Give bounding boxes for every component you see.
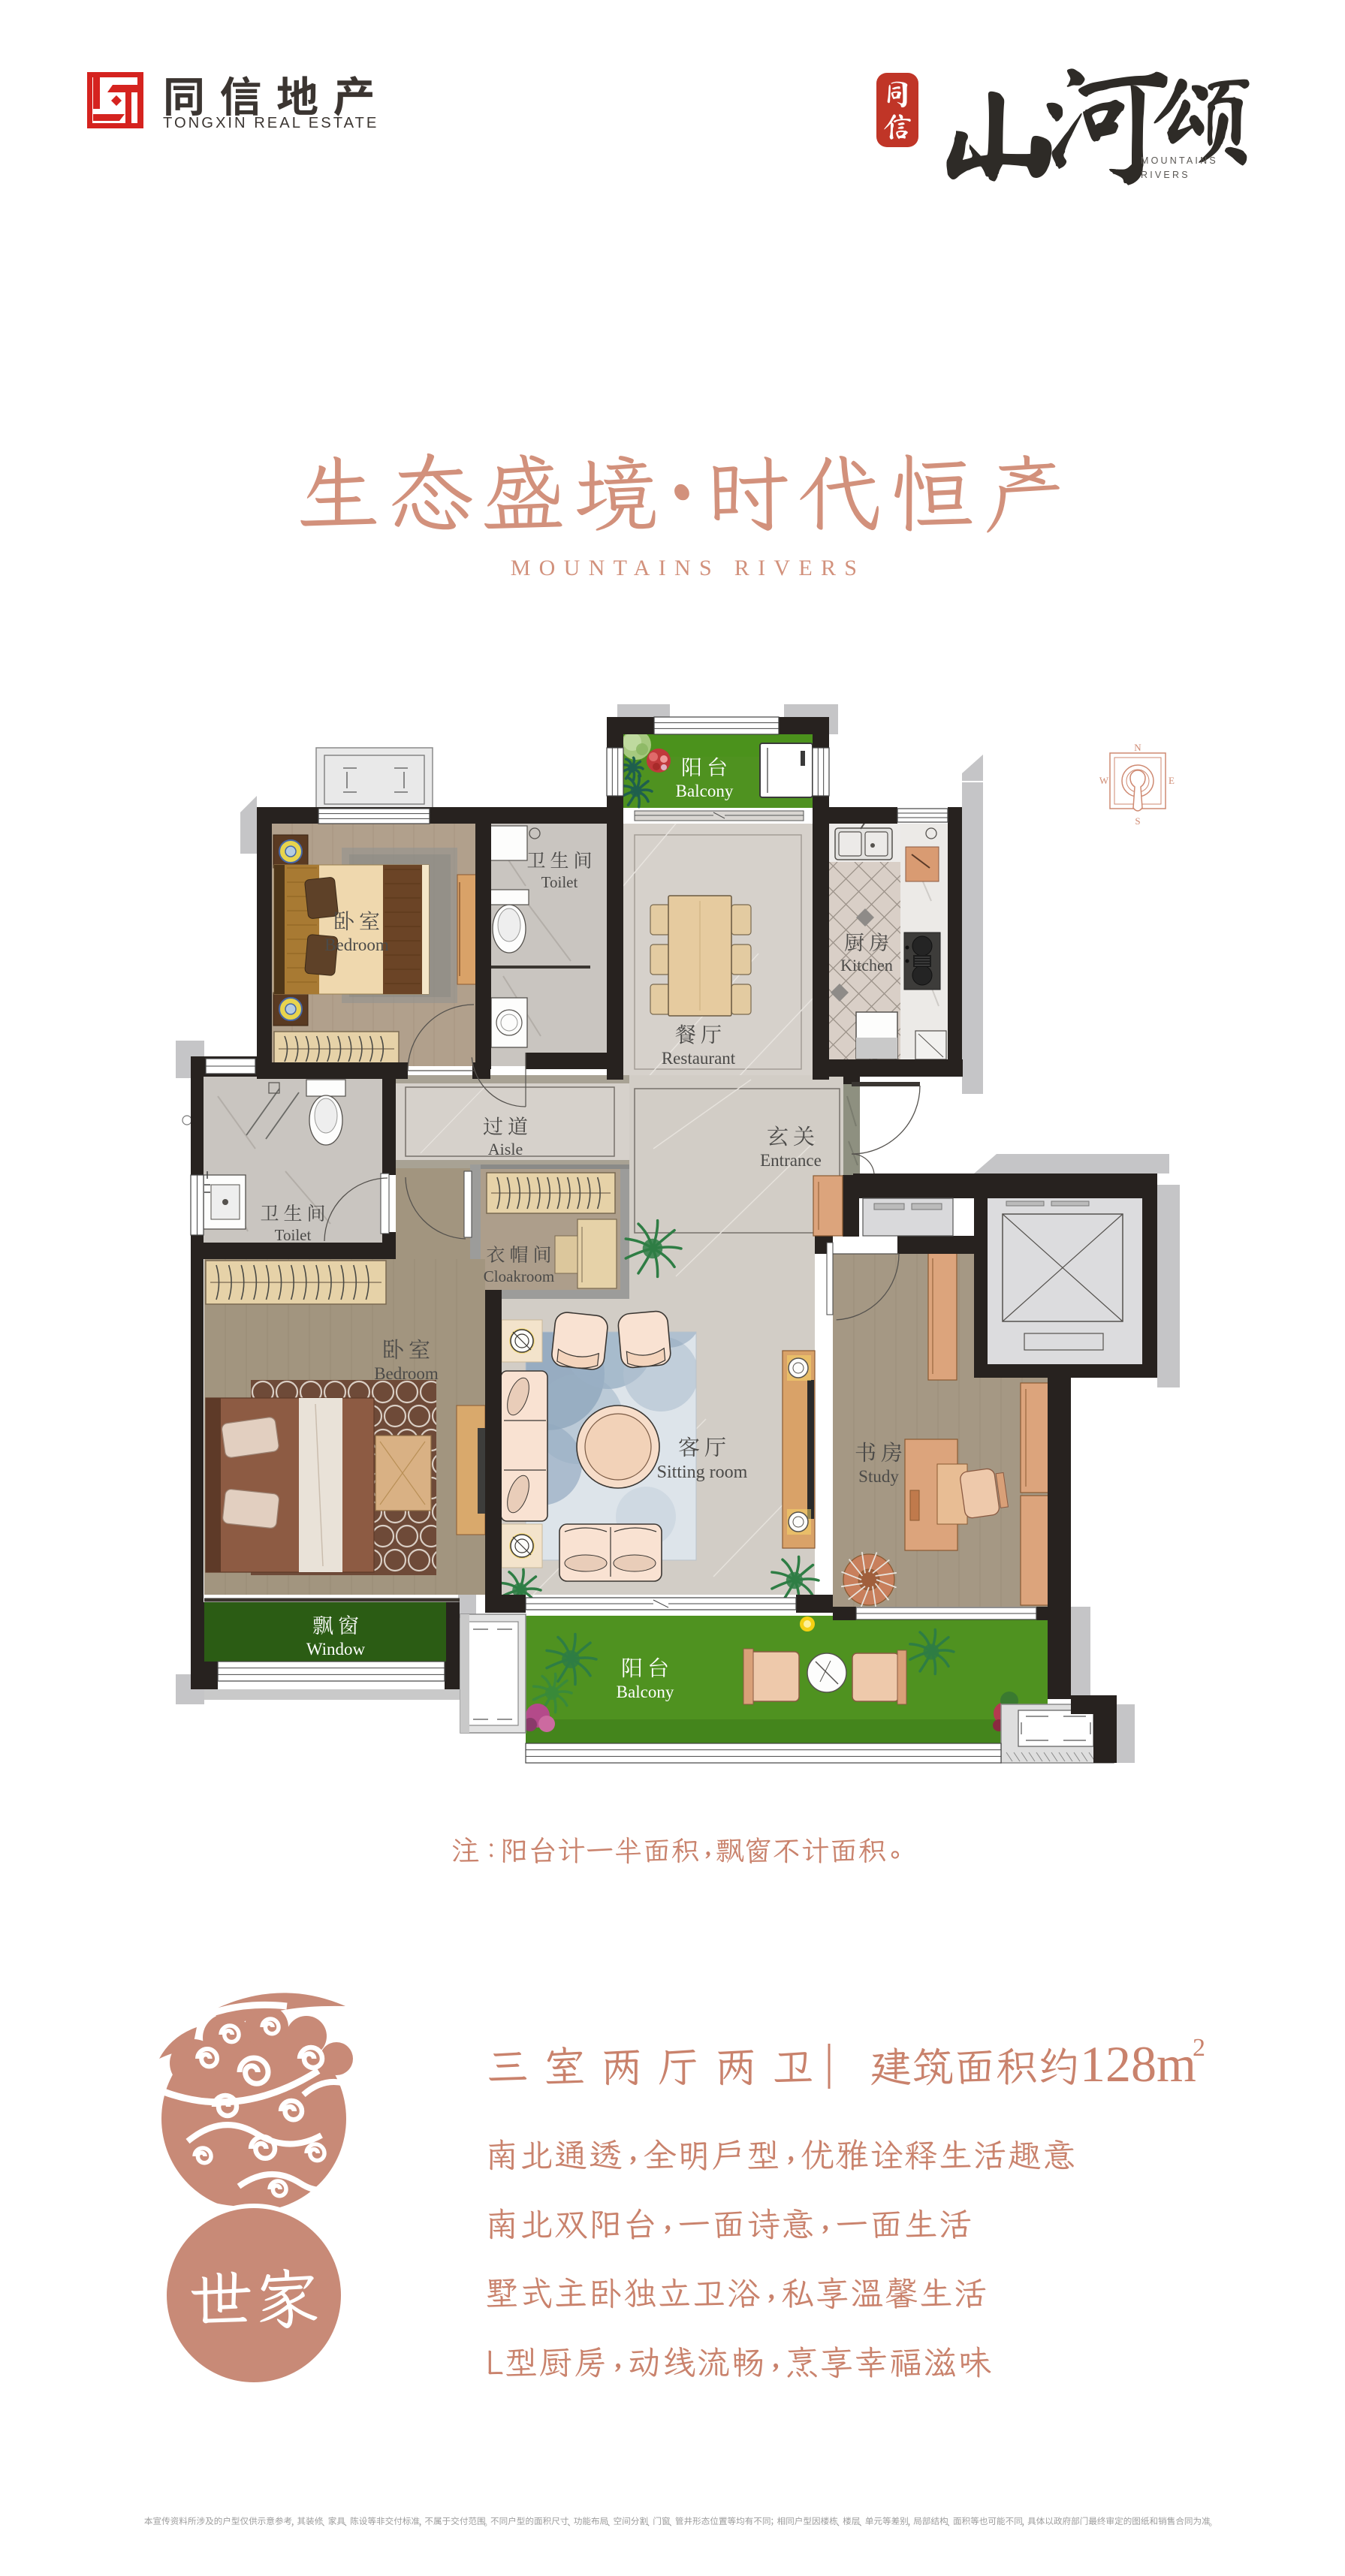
svg-text:Cloakroom: Cloakroom <box>484 1267 555 1285</box>
svg-text:Kitchen: Kitchen <box>840 956 893 975</box>
svg-text:RIVERS: RIVERS <box>1141 170 1190 180</box>
svg-text:Toilet: Toilet <box>541 873 578 891</box>
svg-text:MOUNTAINS RIVERS: MOUNTAINS RIVERS <box>511 556 866 580</box>
svg-text:128m: 128m <box>1080 2035 1196 2092</box>
svg-text:Balcony: Balcony <box>676 782 734 800</box>
svg-text:Study: Study <box>858 1467 899 1486</box>
svg-text:2: 2 <box>1193 2034 1205 2062</box>
svg-text:N: N <box>1134 742 1141 753</box>
svg-text:TONGXIN REAL ESTATE: TONGXIN REAL ESTATE <box>163 115 378 131</box>
svg-text:Sitting room: Sitting room <box>657 1463 748 1482</box>
svg-text:W: W <box>1099 775 1109 786</box>
svg-text:Bedroom: Bedroom <box>324 935 389 954</box>
svg-text:S: S <box>1135 815 1140 827</box>
svg-text:MOUNTAINS: MOUNTAINS <box>1141 155 1218 166</box>
svg-text:Bedroom: Bedroom <box>374 1364 439 1383</box>
svg-text:Balcony: Balcony <box>617 1683 674 1701</box>
svg-text:Aisle: Aisle <box>488 1140 523 1158</box>
svg-text:Entrance: Entrance <box>760 1151 822 1170</box>
svg-text:Restaurant: Restaurant <box>662 1049 736 1068</box>
svg-text:Window: Window <box>306 1640 366 1659</box>
svg-text:E: E <box>1169 775 1175 786</box>
svg-text:Toilet: Toilet <box>275 1226 312 1244</box>
